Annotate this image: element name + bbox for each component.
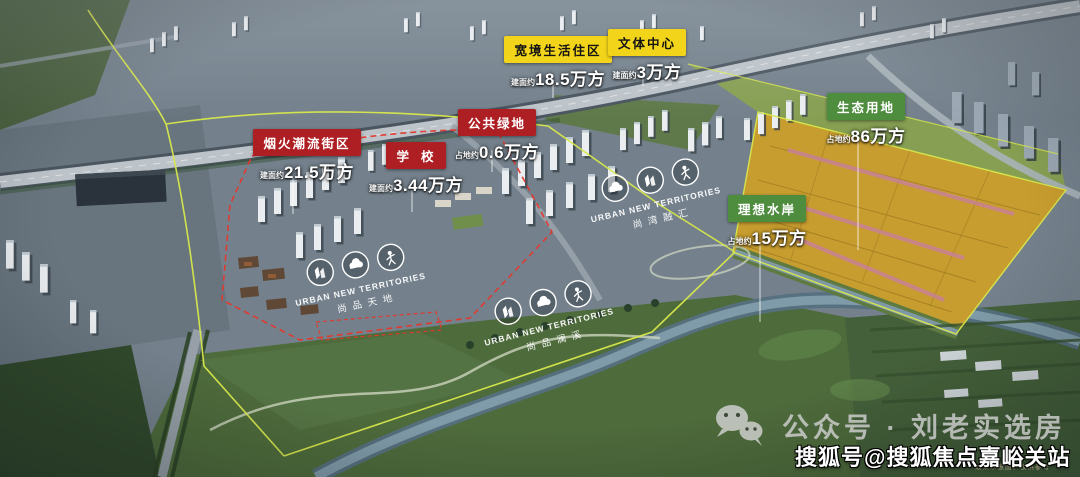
zone-label-waterfront: 理想水岸 占地约15万方	[692, 195, 842, 249]
zone-area-value: 占地约86万方	[827, 122, 906, 147]
zone-label-school: 学校 建面约3.44万方	[341, 142, 491, 196]
wechat-watermark-text: 公众号 · 刘老实选房	[782, 406, 1066, 445]
zone-area-value: 建面约21.5万方	[260, 158, 354, 183]
masterplan-image: URBAN NEW TERRITORIES 尚品天地 URBAN NEW TER…	[0, 0, 1080, 477]
zone-badge: 文体中心	[608, 29, 686, 56]
zone-badge: 理想水岸	[728, 195, 806, 222]
zone-badge: 生态用地	[827, 93, 905, 120]
zone-area-value: 建面约3万方	[613, 58, 682, 83]
zone-area-value: 占地约15万方	[728, 224, 807, 249]
zone-badge: 学校	[386, 142, 445, 169]
zone-badge: 公共绿地	[458, 109, 536, 136]
zone-label-ecological-land: 生态用地 占地约86万方	[791, 93, 941, 147]
sohu-watermark: 搜狐号@搜狐焦点嘉峪关站	[795, 440, 1070, 472]
wechat-icon	[712, 402, 768, 448]
zone-label-culture-center: 文体中心 建面约3万方	[572, 29, 722, 83]
zone-area-value: 建面约3.44万方	[369, 171, 463, 196]
